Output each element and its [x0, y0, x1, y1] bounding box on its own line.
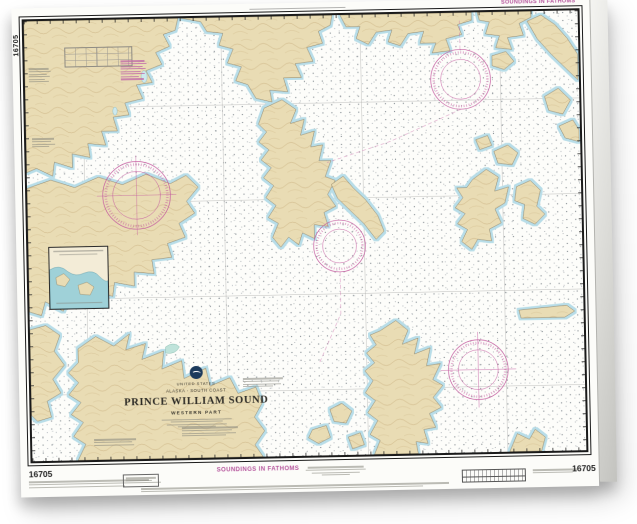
- soundings-note-top: SOUNDINGS IN FATHOMS: [501, 0, 575, 6]
- chart-neatline-frame: UNITED STATES ALASKA - SOUTH COAST PRINC…: [22, 8, 589, 463]
- land-notes-b: [94, 437, 138, 447]
- left-margin-notes: [29, 67, 51, 84]
- canvas-print-mockup: 16705 SOUNDINGS IN FATHOMS: [0, 0, 637, 524]
- authorities-lines: [141, 481, 451, 494]
- corrections-grid: [462, 468, 526, 482]
- chart-number-bottom-right: 16705: [572, 463, 596, 473]
- chart-title-block: UNITED STATES ALASKA - SOUTH COAST PRINC…: [121, 364, 272, 430]
- inset-map: [48, 246, 109, 310]
- margin-stamp-box: [123, 474, 159, 488]
- land-notes-a: [182, 425, 240, 438]
- noaa-logo-icon: [189, 366, 202, 379]
- magenta-note-block: [120, 59, 146, 82]
- top-margin-fineprint: [249, 7, 345, 10]
- left-notes-2: [32, 137, 56, 149]
- chart-sheet: 16705 SOUNDINGS IN FATHOMS: [11, 0, 599, 498]
- soundings-note-bottom: SOUNDINGS IN FATHOMS: [217, 466, 300, 474]
- canvas-print: 16705 SOUNDINGS IN FATHOMS: [11, 0, 617, 499]
- chart-subtitle: WESTERN PART: [122, 408, 272, 416]
- chart-map: [24, 10, 587, 461]
- land-notes-c: [243, 376, 285, 389]
- bottom-center-note: [305, 465, 367, 478]
- chart-number-bottom-left: 16705: [29, 469, 53, 479]
- chart-title: PRINCE WILLIAM SOUND: [121, 394, 271, 408]
- chart-number-top-left: 16705: [13, 34, 20, 56]
